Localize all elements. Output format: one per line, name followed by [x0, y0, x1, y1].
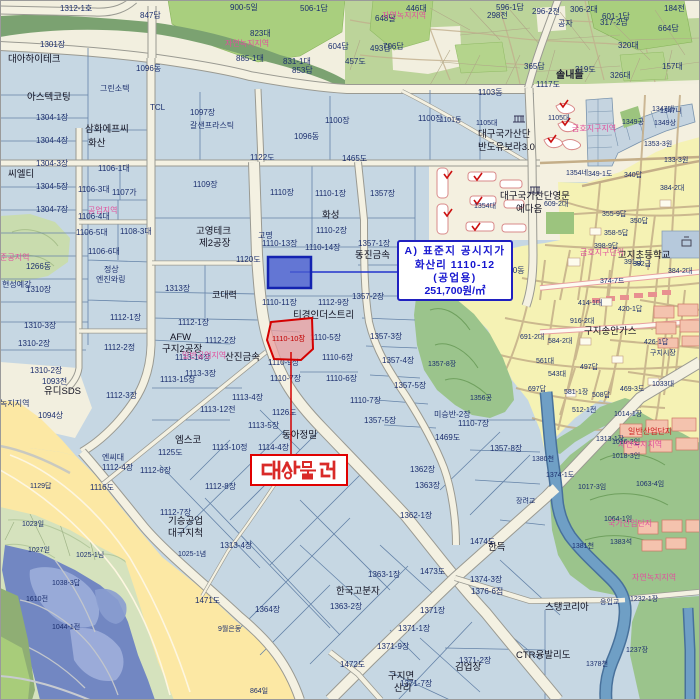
svg-text:831-1대: 831-1대: [283, 57, 311, 66]
svg-text:1473도: 1473도: [420, 567, 445, 576]
svg-text:1044-1전: 1044-1전: [52, 622, 80, 631]
svg-text:1033대: 1033대: [652, 380, 674, 388]
svg-text:고지초등학교: 고지초등학교: [618, 250, 671, 261]
svg-text:1025-1님: 1025-1님: [76, 550, 104, 559]
svg-text:493답: 493답: [370, 43, 391, 53]
svg-text:응입교: 응입교: [600, 598, 620, 606]
svg-text:1063-4임: 1063-4임: [636, 480, 664, 488]
svg-text:갈샌프라스틱: 갈샌프라스틱: [190, 120, 234, 130]
svg-text:한득: 한득: [488, 542, 506, 553]
svg-text:1374-3장: 1374-3장: [470, 574, 503, 584]
svg-text:1383석: 1383석: [610, 537, 632, 546]
svg-text:1304-4장: 1304-4장: [36, 135, 69, 145]
svg-text:1374-1도: 1374-1도: [546, 471, 575, 479]
svg-text:1017-3임: 1017-3임: [578, 483, 606, 491]
svg-text:1112-9장: 1112-9장: [318, 297, 350, 307]
svg-text:374-7드: 374-7드: [600, 277, 625, 285]
svg-text:508답: 508답: [592, 390, 611, 399]
svg-text:1113-4장: 1113-4장: [232, 392, 264, 402]
svg-text:1310-3장: 1310-3장: [24, 320, 57, 330]
svg-text:1310-2장: 1310-2장: [30, 365, 63, 375]
svg-text:358-5답: 358-5답: [604, 228, 629, 237]
svg-text:1094상: 1094상: [38, 410, 64, 420]
svg-text:1363-1장: 1363-1장: [368, 569, 401, 579]
svg-text:885-1대: 885-1대: [236, 54, 264, 63]
svg-text:340답: 340답: [624, 170, 643, 179]
svg-text:384-2대: 384-2대: [660, 184, 684, 192]
svg-text:1313-4장: 1313-4장: [220, 540, 253, 550]
svg-text:1110장: 1110장: [270, 187, 295, 197]
svg-text:9월은동: 9월은동: [218, 624, 242, 633]
svg-text:1106-1대: 1106-1대: [98, 164, 130, 173]
svg-text:1112-6장: 1112-6장: [140, 465, 172, 475]
svg-text:엠스코: 엠스코: [175, 434, 201, 446]
svg-text:1357-2장: 1357-2장: [352, 291, 385, 301]
svg-text:426-1답: 426-1답: [644, 337, 669, 346]
svg-text:1110-7장: 1110-7장: [270, 373, 302, 383]
svg-text:1027읻: 1027읻: [28, 546, 50, 554]
svg-text:고영테크: 고영테크: [196, 226, 231, 237]
svg-text:916-2대: 916-2대: [570, 317, 594, 325]
svg-text:1371장: 1371장: [420, 605, 446, 615]
svg-text:1122도: 1122도: [250, 153, 275, 162]
svg-text:유디SDS: 유디SDS: [44, 386, 81, 397]
svg-text:A) 표준지 공시지가: A) 표준지 공시지가: [404, 244, 505, 257]
svg-text:543대: 543대: [548, 370, 566, 378]
svg-text:900-5일: 900-5일: [230, 3, 258, 12]
svg-text:512-1전: 512-1전: [572, 405, 596, 414]
svg-text:자연녹지지역: 자연녹지지역: [382, 10, 426, 20]
svg-text:1110-2장: 1110-2장: [316, 225, 348, 235]
svg-text:384-2대: 384-2대: [668, 267, 692, 275]
svg-text:1362-1장: 1362-1장: [400, 510, 433, 520]
svg-text:1313-1장: 1313-1장: [596, 434, 625, 443]
svg-text:1106-4대: 1106-4대: [78, 212, 110, 221]
svg-text:1112-1장: 1112-1장: [110, 312, 142, 322]
svg-text:1357-1장: 1357-1장: [358, 238, 391, 248]
svg-text:609-2대: 609-2대: [544, 200, 568, 208]
svg-text:1106-3대: 1106-3대: [78, 185, 110, 194]
svg-text:예다음: 예다음: [516, 204, 542, 215]
svg-text:AFW: AFW: [170, 332, 191, 343]
svg-text:1114-4장: 1114-4장: [258, 442, 290, 452]
svg-text:1472도: 1472도: [340, 660, 365, 669]
svg-text:847답: 847답: [140, 10, 161, 20]
svg-text:1105대: 1105대: [548, 114, 570, 122]
svg-text:398-9답: 398-9답: [594, 241, 619, 250]
svg-text:제2공장: 제2공장: [199, 238, 231, 249]
svg-text:화산: 화산: [88, 138, 106, 149]
svg-text:(공업용): (공업용): [433, 271, 476, 284]
svg-text:1110-11장: 1110-11장: [262, 297, 298, 307]
svg-text:184전: 184전: [664, 3, 685, 13]
svg-text:1353-3원: 1353-3원: [644, 139, 672, 148]
svg-text:298전: 298전: [487, 10, 508, 20]
svg-text:457도: 457도: [345, 57, 366, 66]
svg-text:1266동: 1266동: [26, 262, 51, 271]
svg-text:1023일: 1023일: [22, 519, 44, 528]
svg-text:엔씨대: 엔씨대: [102, 452, 124, 462]
svg-text:133-3원: 133-3원: [664, 155, 688, 164]
svg-text:320대: 320대: [618, 41, 639, 50]
svg-text:584-2대: 584-2대: [548, 337, 572, 345]
svg-text:CTR융발리도: CTR융발리도: [516, 650, 571, 661]
svg-text:1469도: 1469도: [435, 433, 460, 442]
svg-text:355-9답: 355-9답: [602, 209, 627, 218]
svg-text:1108-3대: 1108-3대: [120, 227, 152, 236]
svg-text:엔진와링: 엔진와링: [96, 274, 125, 284]
svg-text:1110-7장: 1110-7장: [350, 395, 382, 405]
svg-text:1101동: 1101동: [440, 116, 462, 124]
svg-text:1304-3장: 1304-3장: [36, 158, 69, 168]
svg-text:자연녹지지역: 자연녹지지역: [618, 439, 662, 449]
svg-text:대아하이테크: 대아하이테크: [8, 53, 61, 65]
svg-text:1106-5대: 1106-5대: [76, 228, 108, 237]
svg-text:1471도: 1471도: [195, 596, 220, 605]
svg-text:1357-3장: 1357-3장: [370, 331, 403, 341]
svg-text:TCL: TCL: [150, 103, 166, 112]
svg-text:녹지지역: 녹지지역: [0, 398, 29, 408]
svg-text:1357-5장: 1357-5장: [364, 415, 397, 425]
svg-text:1112-2장: 1112-2장: [205, 335, 237, 345]
svg-text:853답: 853답: [292, 65, 313, 75]
svg-text:1357-8장: 1357-8장: [428, 359, 457, 368]
svg-text:581-1장: 581-1장: [564, 387, 589, 396]
svg-text:306-2대: 306-2대: [570, 5, 598, 14]
svg-text:1117도: 1117도: [536, 80, 560, 89]
svg-text:자연녹지지역: 자연녹지지역: [225, 38, 269, 48]
svg-text:1313장: 1313장: [165, 283, 191, 293]
svg-text:1357장: 1357장: [370, 188, 396, 198]
svg-text:스탱코리아: 스탱코리아: [545, 602, 589, 613]
svg-text:1112-3장: 1112-3장: [106, 390, 138, 400]
svg-text:1100장: 1100장: [325, 115, 350, 125]
svg-text:1120도: 1120도: [236, 255, 261, 264]
svg-text:국가산업단지: 국가산업단지: [608, 518, 652, 528]
svg-text:화성: 화성: [322, 210, 339, 221]
svg-text:일반산업단지: 일반산업단지: [628, 426, 672, 436]
svg-text:1465도: 1465도: [342, 154, 367, 163]
svg-text:1237장: 1237장: [626, 645, 649, 654]
svg-text:미승반-2장: 미승반-2장: [434, 409, 471, 419]
svg-text:1378천: 1378천: [586, 659, 608, 668]
svg-text:1109장: 1109장: [193, 179, 218, 189]
svg-text:697답: 697답: [528, 384, 547, 393]
svg-text:솔내들: 솔내들: [556, 68, 584, 81]
svg-text:1312-1호: 1312-1호: [60, 4, 92, 13]
svg-text:497답: 497답: [580, 362, 599, 371]
svg-text:1110-13장: 1110-13장: [262, 238, 298, 248]
svg-text:장려교: 장려교: [516, 496, 536, 505]
svg-text:604답: 604답: [328, 41, 349, 51]
svg-text:1310장: 1310장: [26, 284, 52, 294]
svg-text:금호지구지역: 금호지구지역: [572, 123, 616, 133]
svg-text:1371-9장: 1371-9장: [377, 641, 410, 651]
svg-text:1304-1장: 1304-1장: [36, 112, 69, 122]
svg-text:1232-1장: 1232-1장: [630, 594, 659, 603]
svg-text:1304-5장: 1304-5장: [36, 181, 69, 191]
svg-text:1110-1장: 1110-1장: [315, 188, 347, 198]
svg-text:구지면: 구지면: [388, 671, 414, 682]
svg-text:동진금속: 동진금속: [355, 250, 390, 261]
svg-text:반도유보라3.0: 반도유보라3.0: [478, 142, 535, 153]
svg-text:317-2답: 317-2답: [600, 17, 628, 27]
svg-text:1364장: 1364장: [255, 604, 281, 614]
svg-text:1110-7장: 1110-7장: [458, 418, 490, 428]
svg-text:157대: 157대: [662, 62, 683, 71]
svg-text:일반공업지역: 일반공업지역: [182, 350, 226, 360]
svg-text:1349상: 1349상: [654, 118, 677, 127]
svg-text:1356공: 1356공: [470, 394, 493, 402]
svg-text:아스텍코팅: 아스텍코팅: [27, 92, 71, 103]
svg-text:1103동: 1103동: [478, 88, 503, 97]
svg-text:김업장: 김업장: [455, 661, 481, 673]
svg-text:1107가: 1107가: [112, 188, 137, 197]
svg-text:1112-8장: 1112-8장: [205, 481, 237, 491]
svg-text:대구국가산단: 대구국가산단: [478, 129, 531, 140]
svg-text:1105대: 1105대: [476, 119, 498, 127]
svg-text:구지시장: 구지시장: [650, 348, 676, 357]
svg-text:1018-3인: 1018-3인: [612, 451, 640, 460]
svg-text:1301장: 1301장: [40, 39, 66, 49]
svg-text:1113-5장: 1113-5장: [248, 420, 280, 430]
svg-text:기승공업: 기승공업: [168, 515, 203, 527]
svg-text:1376-6집: 1376-6집: [471, 586, 503, 596]
svg-text:1110-6장: 1110-6장: [322, 352, 354, 362]
svg-text:350답: 350답: [630, 216, 649, 225]
svg-text:1354대: 1354대: [474, 202, 496, 210]
svg-text:664답: 664답: [658, 23, 679, 33]
svg-text:산리: 산리: [394, 683, 411, 694]
svg-text:1096동: 1096동: [294, 132, 319, 141]
svg-text:1093전: 1093전: [42, 376, 67, 386]
svg-text:296-2전: 296-2전: [532, 6, 560, 16]
svg-text:1125도: 1125도: [158, 448, 183, 457]
svg-text:1110-14장: 1110-14장: [305, 242, 341, 252]
svg-text:365답: 365답: [524, 61, 545, 71]
svg-text:1363장: 1363장: [415, 480, 441, 490]
svg-text:1110-10장: 1110-10장: [272, 333, 305, 343]
svg-text:1347대: 1347대: [652, 105, 674, 113]
svg-text:대구지척: 대구지척: [168, 528, 203, 539]
svg-text:동아정밀: 동아정밀: [282, 429, 317, 441]
svg-text:1362장: 1362장: [410, 464, 436, 474]
svg-text:1113-3장: 1113-3장: [185, 368, 217, 378]
svg-text:469-3도: 469-3도: [620, 385, 645, 393]
svg-text:414-1대: 414-1대: [578, 299, 602, 307]
svg-text:349-1도: 349-1도: [588, 170, 613, 178]
svg-text:1014-1장: 1014-1장: [614, 409, 643, 418]
svg-text:326대: 326대: [610, 71, 631, 80]
svg-text:공자: 공자: [558, 19, 573, 28]
svg-text:1038-3답: 1038-3답: [52, 578, 81, 587]
svg-text:1126도: 1126도: [272, 408, 297, 417]
svg-text:산진금속: 산진금속: [225, 352, 260, 363]
svg-text:864일: 864일: [250, 686, 268, 695]
svg-text:1357-5장: 1357-5장: [394, 380, 427, 390]
svg-text:삼화에프씨: 삼화에프씨: [85, 124, 129, 135]
svg-text:1097장: 1097장: [190, 107, 216, 117]
svg-text:구지송안가스: 구지송안가스: [584, 326, 637, 337]
svg-text:준공지역: 준공지역: [0, 252, 29, 262]
svg-text:자연녹지지역: 자연녹지지역: [632, 572, 676, 582]
svg-text:506-1답: 506-1답: [300, 3, 328, 13]
svg-text:씨엘티: 씨엘티: [8, 169, 34, 180]
svg-text:1116도: 1116도: [90, 483, 114, 492]
svg-text:1025-1념: 1025-1념: [178, 550, 206, 558]
svg-text:1129답: 1129답: [30, 481, 52, 490]
svg-text:561대: 561대: [536, 357, 554, 365]
svg-text:정상: 정상: [104, 264, 119, 274]
svg-text:1380천: 1380천: [532, 454, 554, 463]
svg-text:691-2대: 691-2대: [520, 333, 544, 341]
svg-text:1113-12전: 1113-12전: [200, 404, 236, 414]
svg-text:1112-2정: 1112-2정: [104, 342, 135, 352]
svg-text:1113-10정: 1113-10정: [212, 442, 248, 452]
svg-text:화산리 1110-12: 화산리 1110-12: [415, 258, 495, 271]
svg-text:251,700원/㎡: 251,700원/㎡: [424, 284, 486, 297]
svg-text:그린소텍: 그린소텍: [100, 83, 129, 93]
svg-text:1112-1장: 1112-1장: [178, 317, 210, 327]
svg-text:392급: 392급: [633, 260, 652, 268]
svg-text:1363-2장: 1363-2장: [330, 601, 363, 611]
svg-text:한국고분자: 한국고분자: [336, 586, 380, 597]
svg-text:1371-1장: 1371-1장: [398, 623, 431, 633]
svg-text:1381천: 1381천: [572, 541, 594, 550]
svg-text:1112-4장: 1112-4장: [102, 462, 134, 472]
svg-text:1310-2장: 1310-2장: [18, 338, 51, 348]
svg-text:823대: 823대: [250, 29, 271, 38]
svg-text:1354네: 1354네: [566, 168, 588, 177]
svg-text:코대력: 코대력: [212, 289, 237, 300]
svg-text:420-1답: 420-1답: [618, 304, 643, 313]
svg-text:1349공: 1349공: [622, 118, 645, 126]
svg-text:1357-4장: 1357-4장: [382, 355, 415, 365]
svg-text:1304-7장: 1304-7장: [36, 204, 69, 214]
svg-text:1110-5장: 1110-5장: [310, 332, 342, 342]
svg-text:1110-6장: 1110-6장: [326, 373, 358, 383]
svg-text:1610전: 1610전: [26, 594, 48, 603]
svg-text:1106-6대: 1106-6대: [88, 247, 120, 256]
svg-text:1096동: 1096동: [136, 64, 161, 73]
svg-text:1357-8장: 1357-8장: [490, 443, 523, 453]
